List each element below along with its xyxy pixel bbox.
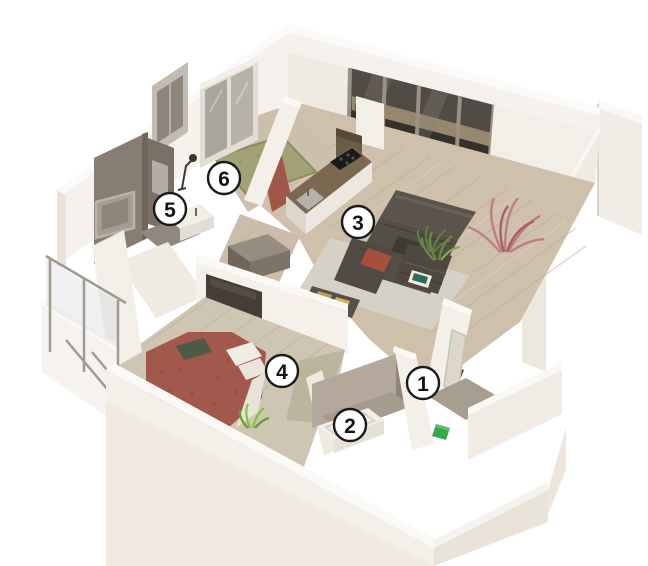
room-marker-5-label: 5 [164,199,176,222]
room-marker-4: 4 [266,355,298,387]
room-marker-3: 3 [342,206,374,238]
room-marker-1: 1 [407,367,439,399]
bath5-small-mirror [152,160,168,198]
right-fin-wall [598,100,642,235]
room-marker-4-label: 4 [276,361,288,384]
floorplan-render: 1 2 3 4 5 6 [0,0,648,566]
room-marker-6-label: 6 [218,168,230,191]
terrace-parapet [468,362,562,460]
room-marker-3-label: 3 [352,212,364,235]
entry-green-box [432,424,450,440]
room-marker-2: 2 [334,409,366,441]
floorplan-scene: 1 2 3 4 5 6 [0,0,648,566]
room-marker-5: 5 [154,193,186,225]
front-wall-right [434,428,566,566]
room-marker-6: 6 [208,162,240,194]
room-marker-1-label: 1 [417,373,429,396]
room-marker-2-label: 2 [344,415,356,438]
